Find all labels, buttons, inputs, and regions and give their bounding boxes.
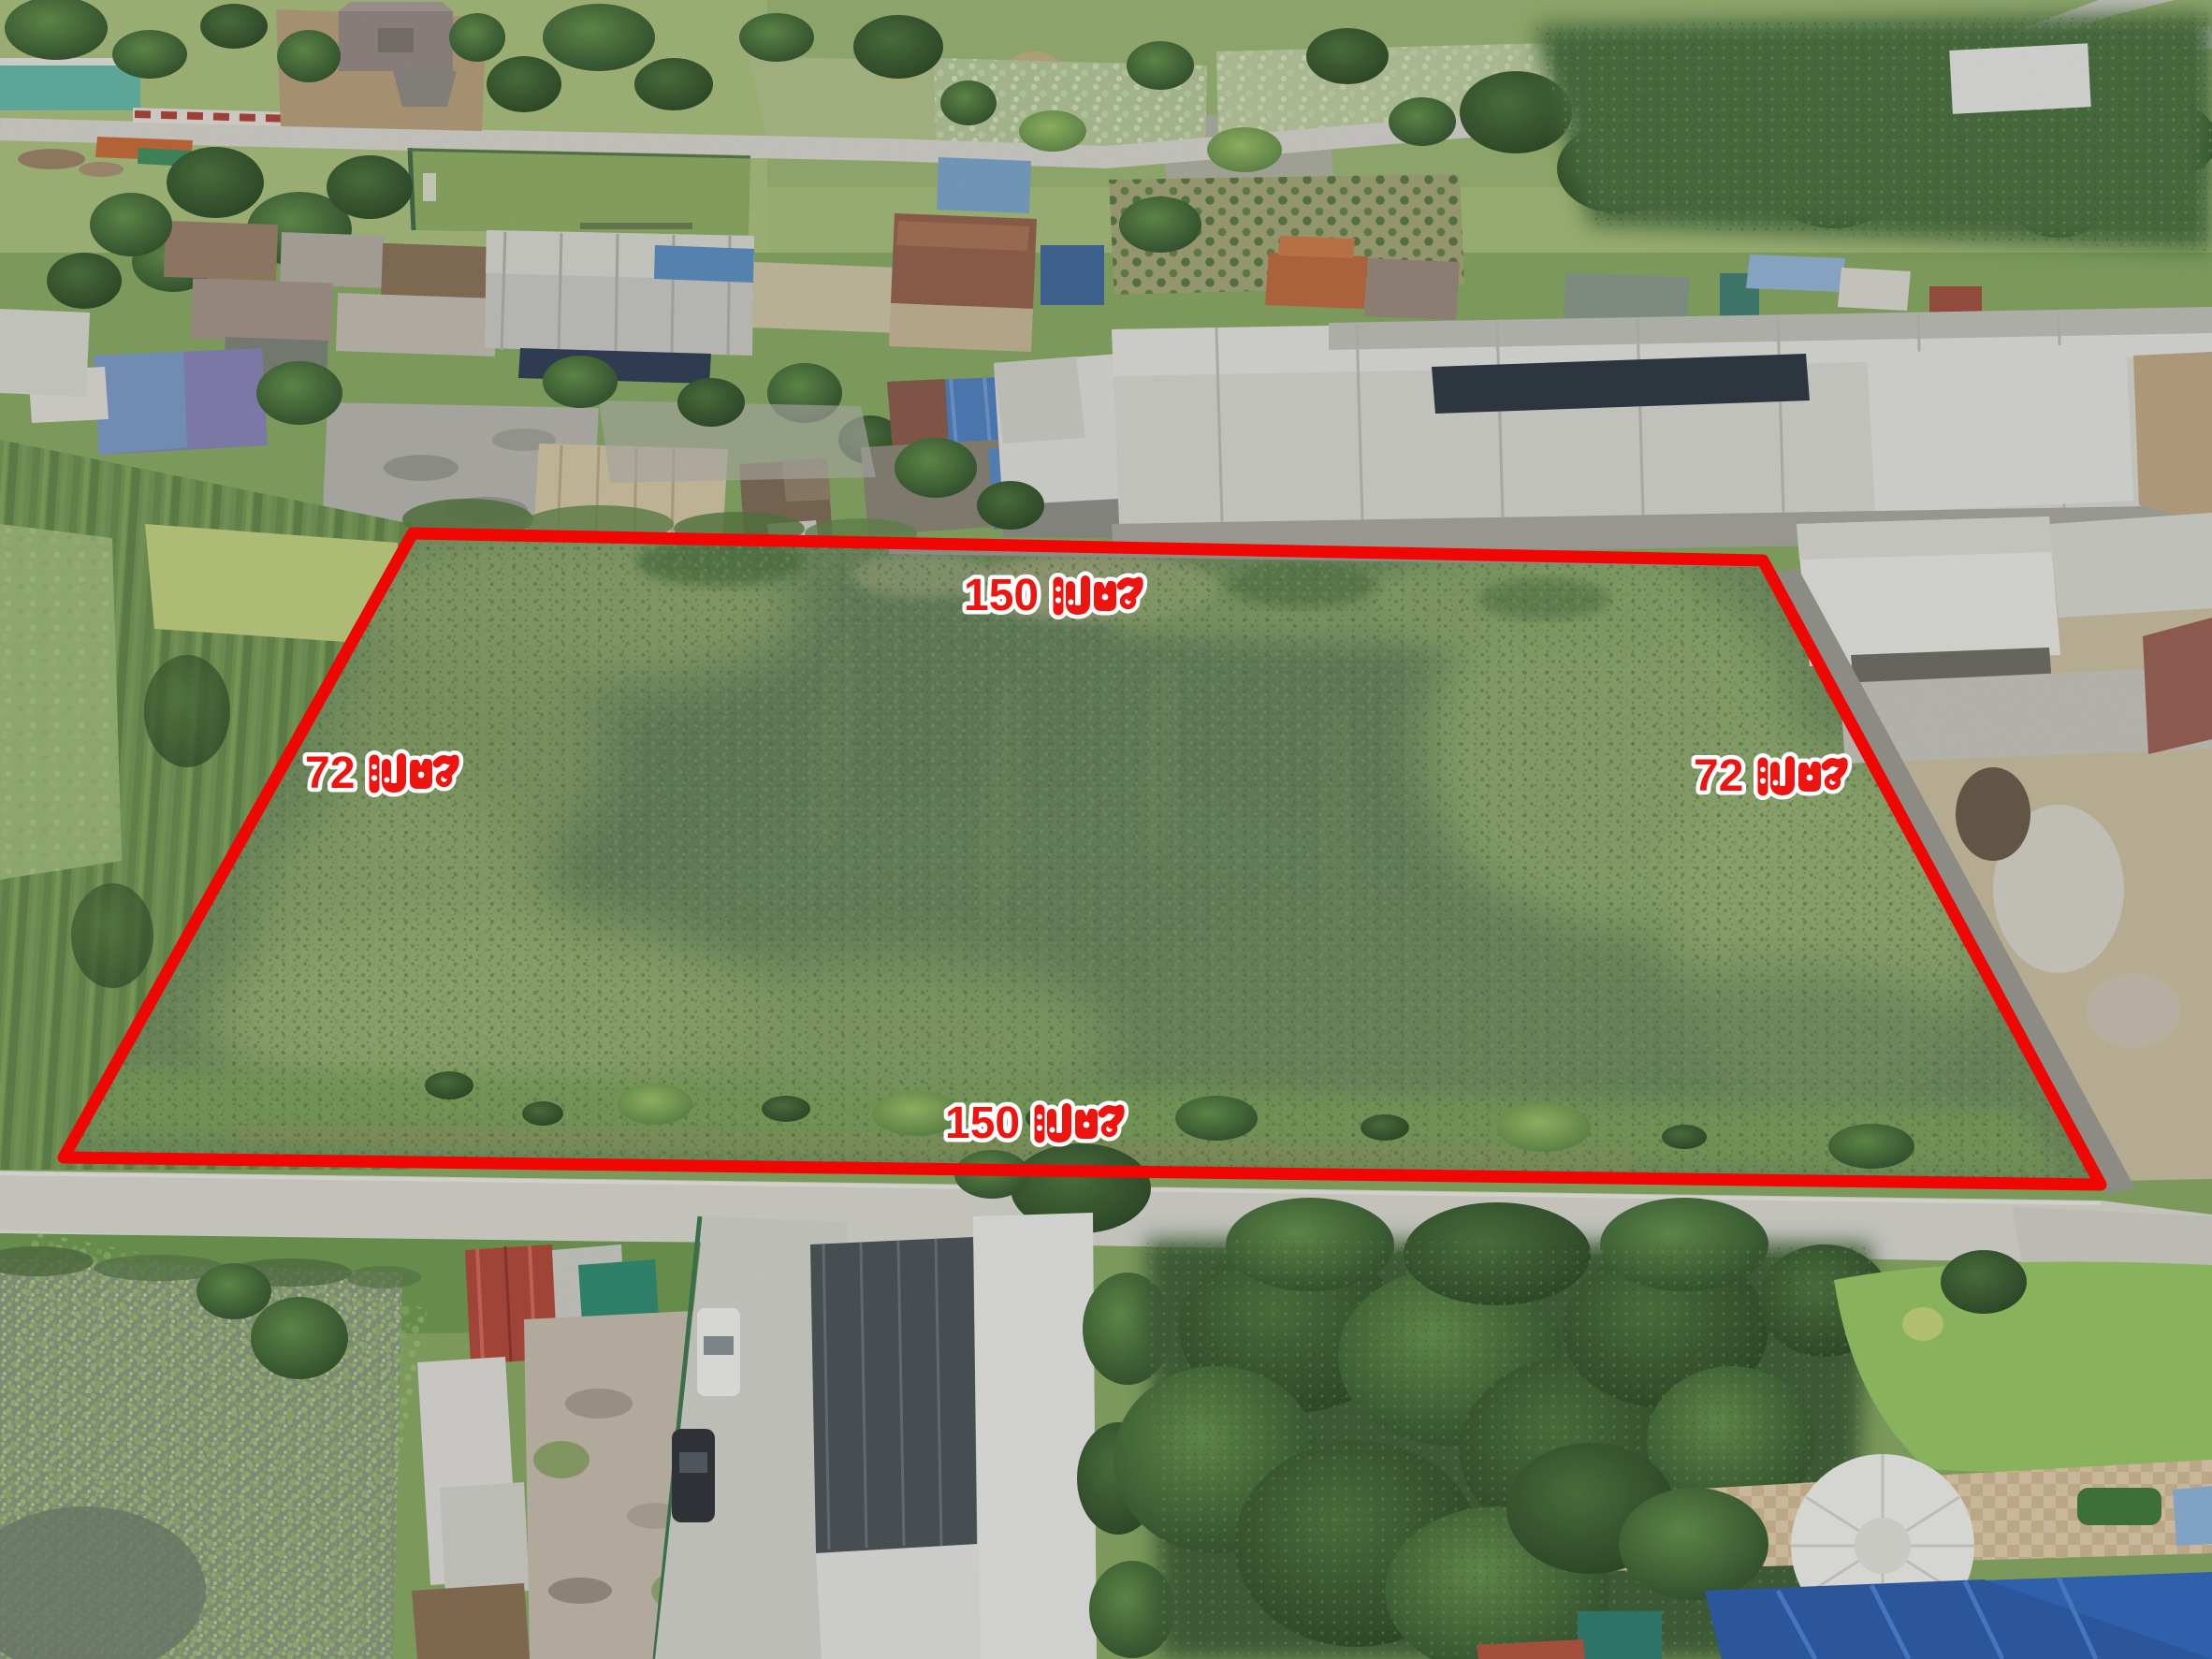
svg-text:72: 72 — [1694, 751, 1743, 801]
svg-text:150: 150 — [964, 571, 1039, 620]
svg-text:72: 72 — [305, 749, 355, 798]
svg-text:150: 150 — [945, 1099, 1020, 1148]
